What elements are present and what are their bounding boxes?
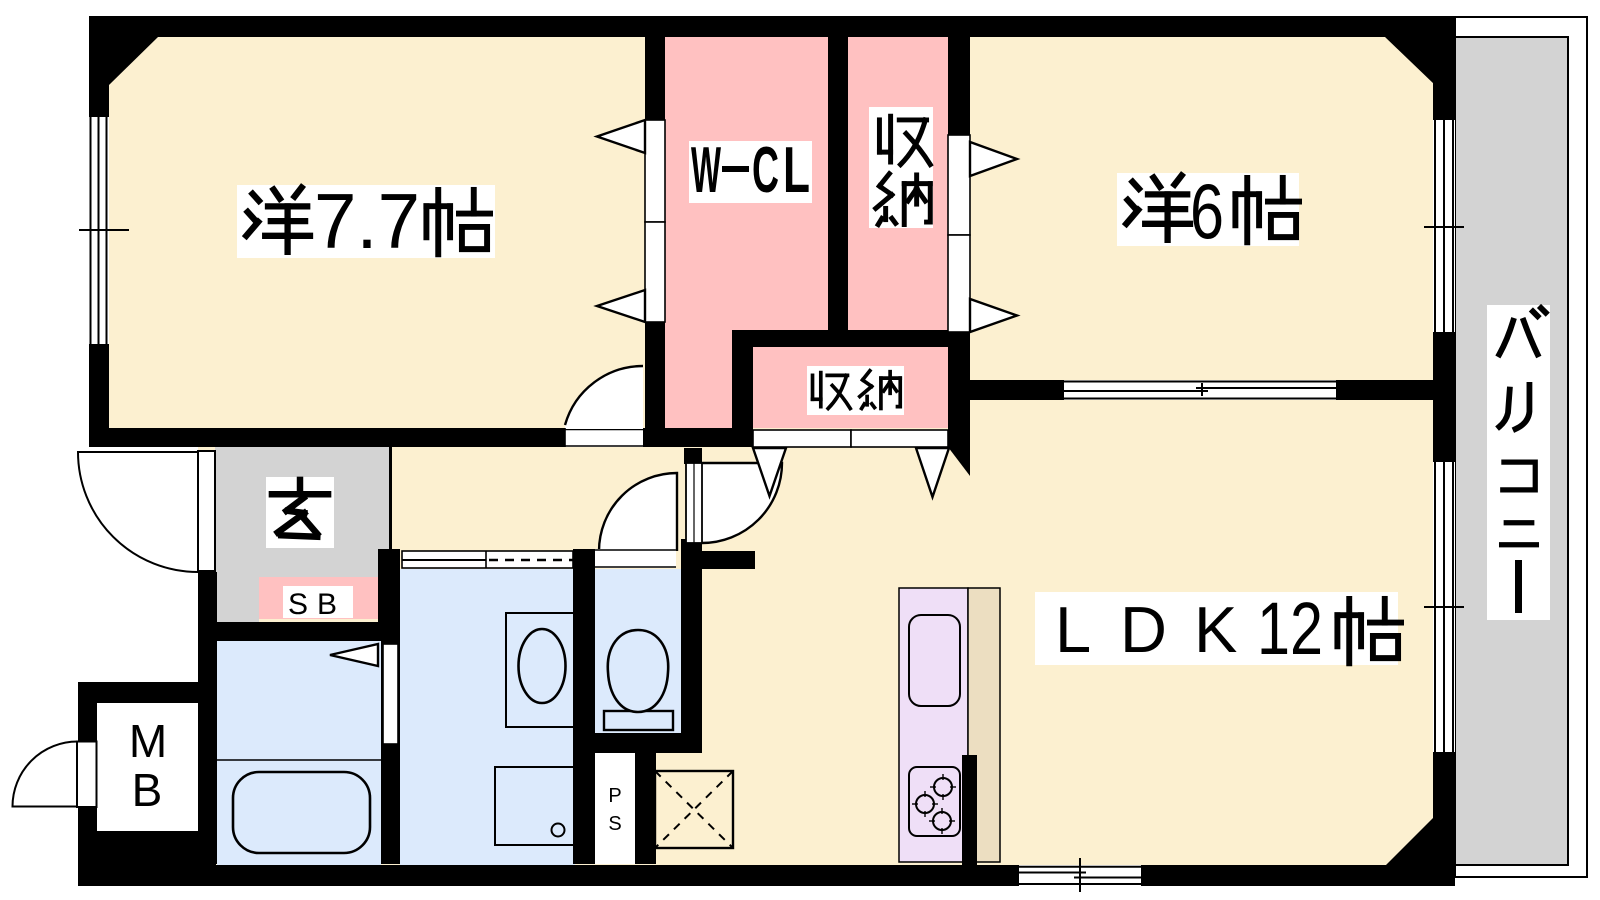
svg-text:7.7: 7.7 [314,177,420,265]
svg-text:M: M [129,715,167,767]
svg-text:L: L [1055,593,1091,666]
svg-text:C: C [752,133,779,206]
svg-text:B: B [132,764,163,816]
svg-text:L: L [783,133,810,206]
svg-text:6: 6 [1190,167,1224,255]
svg-text:P: P [608,785,621,807]
svg-text:SB: SB [288,588,346,621]
svg-text:K: K [1194,593,1237,666]
svg-text:D: D [1120,593,1167,666]
svg-text:W: W [691,133,721,206]
svg-text:S: S [608,813,621,835]
svg-text:12: 12 [1257,587,1323,670]
